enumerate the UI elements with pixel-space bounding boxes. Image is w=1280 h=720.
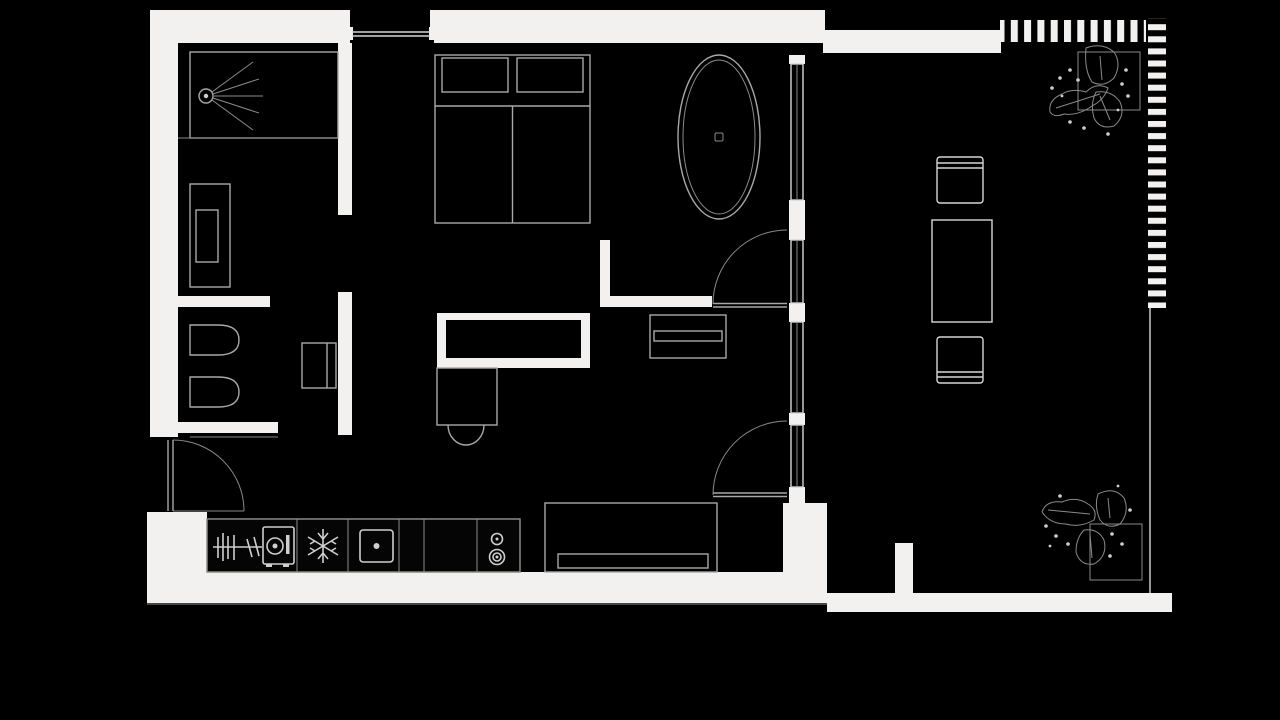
bathroom-cabinet [302, 343, 336, 388]
desk-chair [437, 368, 497, 445]
glazing-mullion [789, 487, 805, 503]
desk [437, 313, 590, 368]
shower [178, 52, 338, 138]
plant-icon-bottom [1042, 485, 1142, 580]
wc-bottom-wall [150, 422, 278, 433]
sideboard [650, 315, 726, 358]
floor-plan-page: Black-and-white apartment floor plan wit… [0, 0, 1280, 720]
railing-hatch-top [1000, 20, 1146, 42]
glazing-mullion [789, 55, 805, 64]
toilet [190, 325, 239, 355]
balcony-door-lower [713, 421, 787, 497]
double-bed [435, 55, 590, 223]
balcony-top-wall [823, 30, 1001, 53]
balcony-door-upper [713, 230, 787, 307]
floor-plan: Black-and-white apartment floor plan wit… [0, 0, 1280, 720]
top-wall-left [150, 10, 350, 43]
entry-corner-block [147, 512, 207, 575]
kitchen-counter [207, 519, 520, 572]
window-cap-right [429, 27, 434, 40]
left-wall [150, 10, 178, 437]
window-cap-left [348, 27, 353, 40]
plant-icon-top [1050, 46, 1140, 136]
bottom-wall [147, 572, 827, 603]
balcony-bottom-wall [827, 593, 1172, 612]
bath-divider-horizontal [608, 296, 712, 307]
bathtub [678, 55, 760, 219]
glazing-mullion [789, 200, 805, 240]
balcony-stub-wall [895, 543, 913, 593]
wc-top-wall [150, 296, 270, 307]
dining-table [932, 220, 992, 322]
sofa [545, 503, 717, 572]
pillow-left [442, 58, 508, 92]
dining-chair-bottom [937, 337, 983, 383]
corridor-wall [338, 292, 352, 435]
shower-head-icon [199, 62, 263, 130]
dining-chair-top [937, 157, 983, 203]
pillow-right [517, 58, 583, 92]
shower-partition-wall [338, 43, 352, 215]
glazing-mullion [789, 413, 805, 425]
bidet [190, 377, 239, 407]
railing-hatch-right [1148, 18, 1166, 308]
tub-drain [715, 133, 723, 141]
glazing-wall [789, 55, 805, 503]
glazing-corner-block [783, 503, 827, 603]
entry-door [168, 440, 244, 511]
top-wall-right [430, 10, 825, 43]
glazing-mullion [789, 303, 805, 322]
vanity [190, 184, 230, 287]
